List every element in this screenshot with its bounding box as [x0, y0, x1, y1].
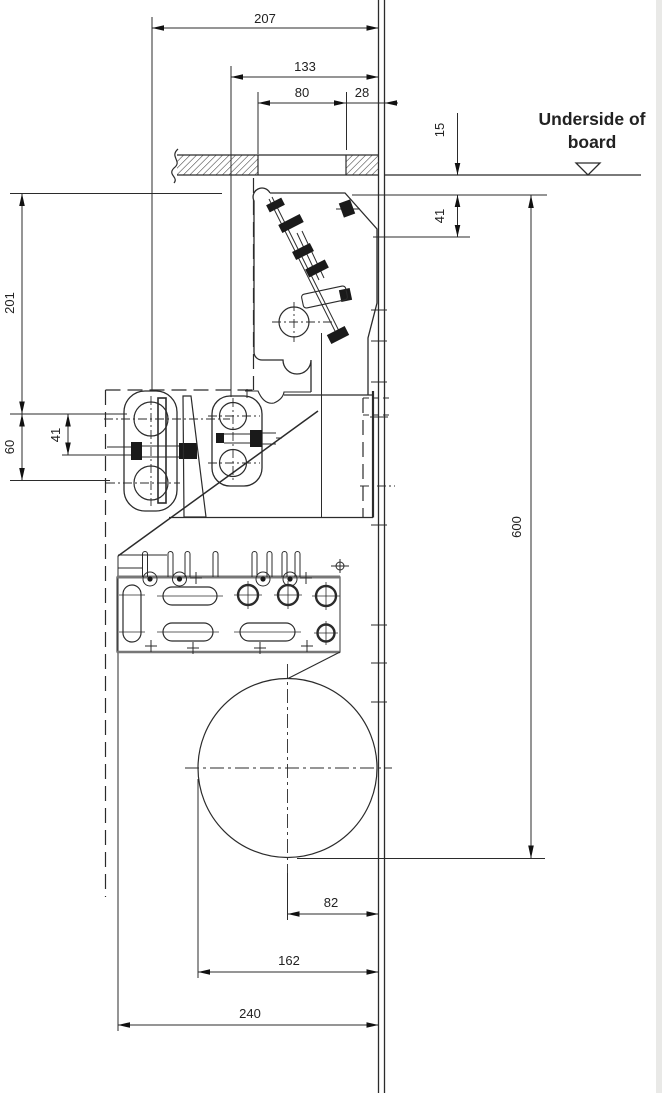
wall-lines — [379, 0, 385, 1093]
fastener-dots — [143, 572, 297, 586]
wall-tick-marks — [360, 310, 395, 702]
drawing-canvas: Underside of board 207 133 80 28 — [0, 0, 662, 1093]
circle-centerlines — [185, 664, 392, 873]
dim-bottom-inner: 82 — [288, 895, 379, 917]
level-symbol-icon — [576, 163, 600, 175]
svg-text:41: 41 — [48, 428, 63, 442]
dim-bottom-overall: 240 — [118, 1006, 379, 1028]
left-roller-bracket — [104, 391, 230, 511]
board-section — [172, 149, 379, 183]
svg-text:82: 82 — [324, 895, 338, 910]
svg-text:80: 80 — [295, 85, 309, 100]
datum-target — [331, 559, 349, 573]
extension-lines-left — [10, 194, 222, 481]
svg-text:28: 28 — [355, 85, 369, 100]
linkage-assembly — [266, 197, 360, 344]
dim-total-height: 600 — [297, 195, 545, 859]
svg-text:207: 207 — [254, 11, 276, 26]
dim-board-drop: 15 — [432, 123, 460, 175]
slotted-holes — [123, 585, 295, 642]
technical-drawing: Underside of board 207 133 80 28 — [0, 0, 662, 1093]
underside-note-line1: Underside of — [539, 109, 646, 129]
dim-inner-top: 133 — [231, 59, 379, 80]
roll-circle — [185, 652, 392, 873]
svg-text:15: 15 — [432, 123, 447, 137]
svg-text:41: 41 — [432, 209, 447, 223]
dim-roller-to-bolt: 41 — [48, 414, 71, 455]
dim-left-height: 201 — [2, 194, 25, 415]
dim-overall-top: 207 — [152, 11, 379, 31]
dim-roller-spacing: 60 — [2, 414, 25, 481]
dim-wall-offset: 28 — [346, 85, 398, 106]
extension-lines-bottom — [118, 556, 288, 1031]
svg-text:600: 600 — [509, 516, 524, 538]
mounting-plate — [117, 552, 349, 655]
clamp-bolt-right — [216, 430, 282, 447]
svg-text:162: 162 — [278, 953, 300, 968]
hole-centerlines — [119, 595, 301, 632]
dim-slot-width: 80 — [258, 85, 346, 106]
svg-text:201: 201 — [2, 292, 17, 314]
svg-text:240: 240 — [239, 1006, 261, 1021]
scan-edge — [656, 0, 662, 1093]
underside-reference — [385, 163, 642, 175]
dim-bottom-mid: 162 — [198, 953, 379, 975]
svg-text:133: 133 — [294, 59, 316, 74]
svg-text:60: 60 — [2, 440, 17, 454]
underside-note-line2: board — [568, 132, 617, 152]
dim-upper-right-gap: 41 — [432, 195, 460, 237]
